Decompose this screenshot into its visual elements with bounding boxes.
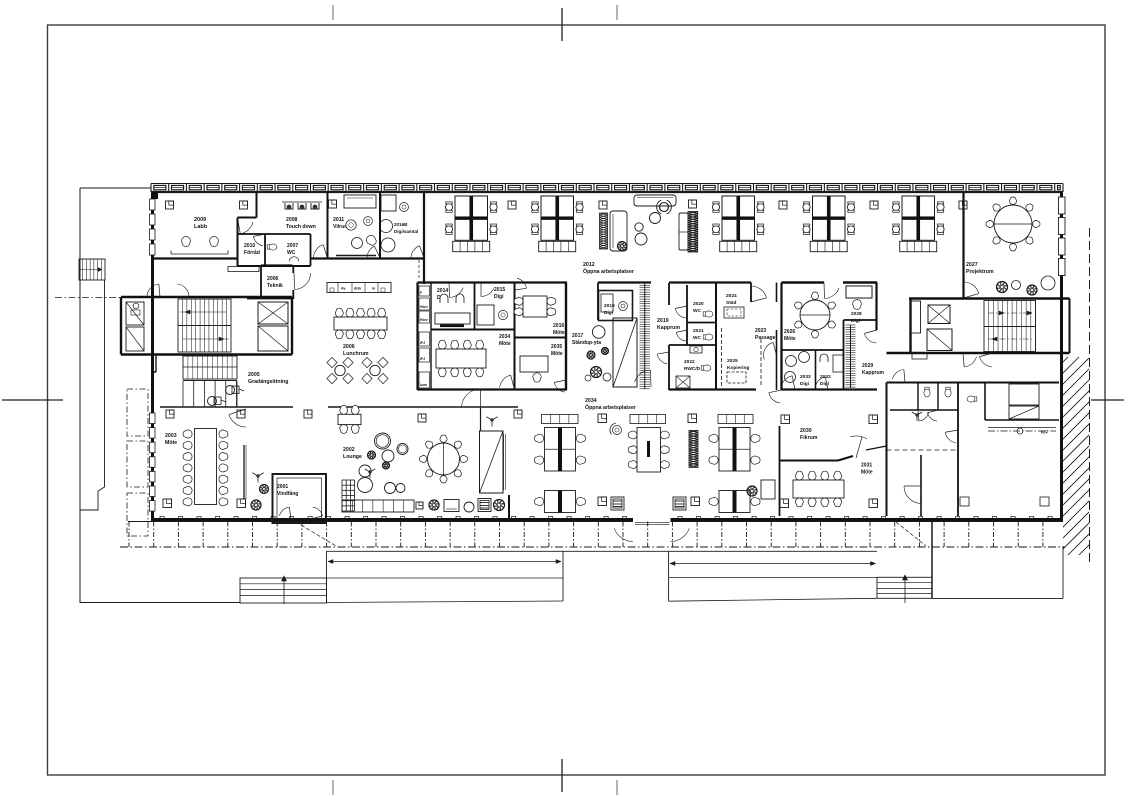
svg-text:2001: 2001 (277, 484, 288, 490)
svg-text:2028: 2028 (851, 311, 862, 317)
svg-text:2006: 2006 (267, 276, 279, 282)
svg-text:Möte: Möte (861, 469, 873, 475)
svg-text:Av.: Av. (341, 287, 346, 291)
svg-text:2015: 2015 (494, 287, 505, 293)
svg-text:WC: WC (287, 250, 296, 256)
svg-text:Möte: Möte (551, 351, 563, 357)
svg-text:Vindfång: Vindfång (277, 490, 298, 497)
svg-text:2006: 2006 (343, 344, 355, 350)
svg-text:WC: WC (693, 308, 702, 314)
svg-text:2022: 2022 (684, 359, 695, 365)
svg-text:2009: 2009 (194, 217, 206, 223)
svg-text:2030: 2030 (800, 428, 812, 434)
svg-text:WC: WC (693, 335, 702, 341)
svg-text:2031: 2031 (861, 463, 872, 469)
svg-text:Kopiering: Kopiering (727, 365, 749, 371)
svg-text:2002: 2002 (343, 447, 355, 453)
svg-text:Digi: Digi (851, 318, 860, 324)
svg-text:2035: 2035 (551, 344, 562, 350)
svg-text:2012: 2012 (583, 262, 595, 268)
svg-text:IPJ: IPJ (420, 357, 425, 361)
svg-text:Öppna arbetsplatser: Öppna arbetsplatser (585, 404, 636, 411)
svg-text:2005: 2005 (248, 372, 260, 378)
svg-text:2027: 2027 (966, 262, 978, 268)
svg-text:2016B: 2016B (394, 222, 408, 227)
svg-text:Möte: Möte (784, 336, 796, 342)
svg-text:2014: 2014 (437, 288, 448, 294)
svg-text:Digi/samtal: Digi/samtal (394, 229, 418, 234)
svg-text:2011: 2011 (333, 217, 344, 223)
svg-text:Möte: Möte (499, 341, 511, 347)
svg-text:2024: 2024 (726, 293, 737, 299)
svg-text:2034: 2034 (585, 398, 597, 404)
svg-text:2003: 2003 (165, 433, 177, 439)
svg-text:Projektrum: Projektrum (966, 269, 994, 275)
svg-text:Öppna arbetsplatser: Öppna arbetsplatser (583, 268, 634, 275)
svg-text:2025: 2025 (727, 358, 738, 364)
svg-text:2016: 2016 (553, 323, 564, 329)
svg-text:Gradängsittning: Gradängsittning (248, 379, 288, 385)
svg-text:Lounge: Lounge (343, 454, 362, 460)
svg-text:Digi: Digi (604, 310, 613, 316)
svg-text:Hörv: Hörv (420, 318, 428, 322)
svg-text:Digi: Digi (820, 381, 829, 387)
svg-text:2017: 2017 (572, 333, 583, 339)
svg-text:Hörv: Hörv (420, 305, 428, 309)
svg-text:2021: 2021 (693, 328, 704, 334)
svg-text:Kapprum: Kapprum (862, 370, 885, 376)
svg-text:IPJ: IPJ (420, 341, 425, 345)
svg-text:RWC/D: RWC/D (684, 366, 701, 372)
svg-text:Digi: Digi (800, 381, 809, 387)
svg-text:Möte: Möte (553, 330, 565, 336)
svg-text:2020: 2020 (693, 301, 704, 307)
svg-text:Ståndup-yta: Ståndup-yta (572, 339, 601, 346)
svg-text:2019: 2019 (657, 318, 669, 324)
svg-text:disk: disk (354, 287, 362, 291)
svg-text:2033: 2033 (800, 374, 811, 380)
svg-text:2007: 2007 (287, 243, 298, 249)
svg-text:2029: 2029 (862, 363, 873, 369)
svg-text:Förråd: Förråd (244, 249, 260, 256)
svg-text:F: F (420, 291, 422, 295)
svg-text:Kapprum: Kapprum (657, 325, 680, 331)
svg-text:2023: 2023 (755, 328, 766, 334)
svg-text:Digi: Digi (494, 294, 504, 300)
svg-text:Labb: Labb (194, 224, 208, 230)
svg-text:2026: 2026 (784, 329, 795, 335)
svg-text:2034: 2034 (499, 334, 510, 340)
svg-text:Möte: Möte (165, 440, 177, 446)
svg-text:Touch down: Touch down (286, 224, 316, 230)
svg-text:kum: kum (420, 383, 427, 387)
svg-text:K/F: K/F (1041, 430, 1048, 435)
svg-text:Städ: Städ (726, 300, 736, 306)
svg-text:Fikrum: Fikrum (800, 435, 818, 441)
svg-text:Lunchrum: Lunchrum (343, 351, 369, 357)
svg-text:Passage: Passage (755, 335, 776, 341)
svg-text:2010: 2010 (244, 243, 255, 249)
svg-text:Teknik: Teknik (267, 283, 283, 289)
svg-text:2008: 2008 (286, 217, 298, 223)
